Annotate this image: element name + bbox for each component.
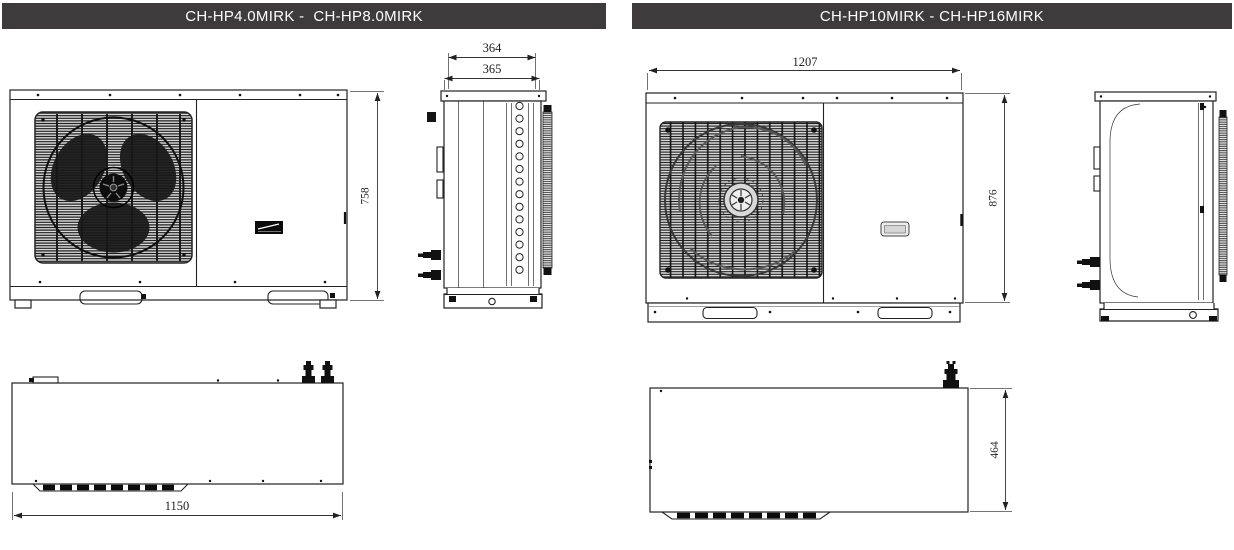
base-pedestal: [444, 288, 542, 308]
dimension-depth-364-label: 364: [483, 41, 503, 55]
base-pedestal: [1100, 303, 1218, 321]
datasheet-page: CH-HP4.0MIRK - CH-HP8.0MIRK CH-HP10MIRK …: [0, 0, 1234, 550]
dimension-width-1207: 1207: [648, 55, 962, 90]
dimension-depth-365: 365: [445, 62, 540, 90]
hp4-8-front-view: 758: [10, 90, 384, 308]
handle-tab: [427, 112, 436, 122]
nameplate: [881, 222, 909, 236]
nameplate: [255, 221, 283, 234]
base-rail: [648, 303, 960, 322]
hp10-16-top-view: 464: [649, 361, 1012, 519]
dimension-depth-464-label: 464: [989, 441, 1001, 459]
dimensional-drawings: 758 364 365: [0, 0, 1234, 550]
hp10-16-front-view: 1207: [646, 55, 1010, 322]
dimension-height-876: 876: [965, 94, 1010, 303]
air-outlet-slot: [33, 484, 188, 491]
valve-icons: [418, 250, 441, 280]
dimension-height-758: 758: [350, 92, 384, 301]
dimension-width-1150-label: 1150: [165, 499, 190, 513]
dimension-depth-365-label: 365: [483, 62, 502, 76]
valve-icons: [1077, 257, 1100, 290]
dimension-width-1150: 1150: [13, 492, 343, 520]
hp4-8-side-view: 364 365: [418, 41, 552, 308]
heat-exchanger-fins: [543, 105, 552, 275]
fan-grille: [660, 122, 822, 278]
dimension-height-876-label: 876: [988, 189, 1000, 207]
air-outlet-slot: [662, 512, 830, 519]
hp4-8-top-view: 1150: [12, 361, 343, 520]
dimension-width-1207-label: 1207: [793, 55, 818, 69]
heat-exchanger-fins: [1219, 110, 1227, 282]
valve-icon: [943, 361, 959, 388]
dimension-height-758-label: 758: [360, 187, 372, 205]
valve-icons: [302, 361, 334, 383]
handle: [33, 377, 58, 383]
hp10-16-side-view: [1077, 92, 1227, 321]
fan-grille: [35, 112, 192, 263]
dimension-depth-464: 464: [970, 389, 1012, 512]
